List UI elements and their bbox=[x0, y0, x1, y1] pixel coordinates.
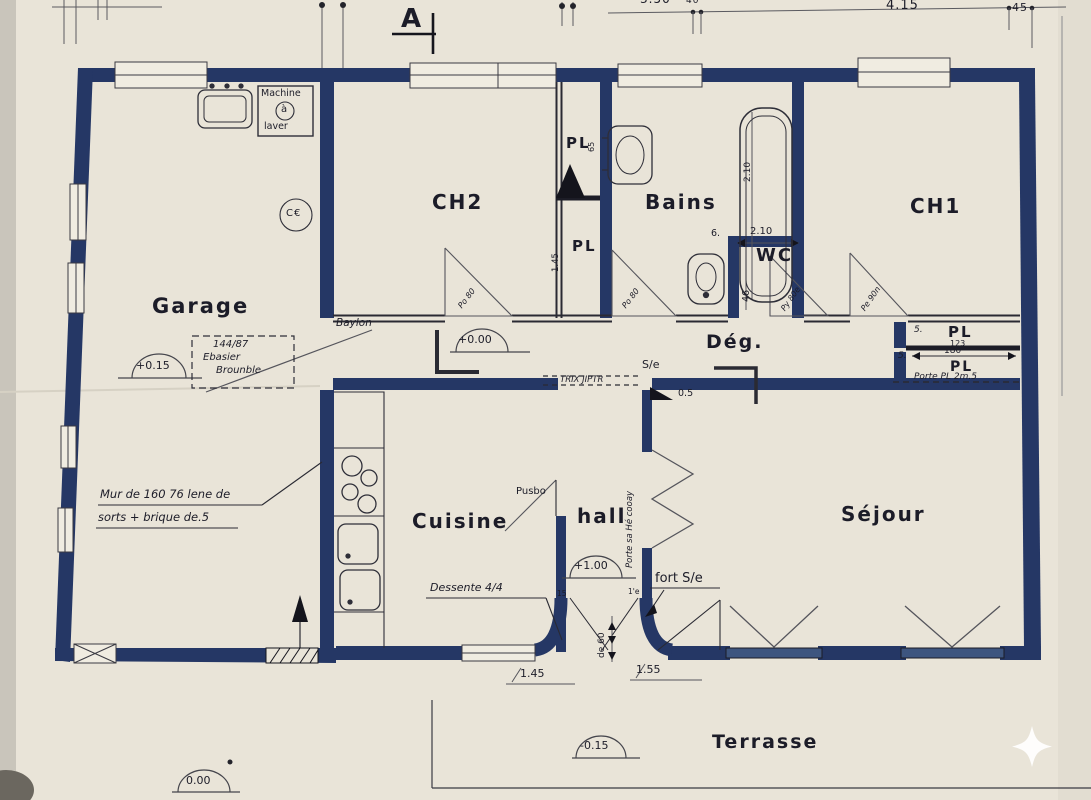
top-dim-415: 4.15 bbox=[886, 0, 919, 12]
room-label-wc: WC bbox=[756, 247, 793, 265]
room-label-bains: Bains bbox=[645, 192, 717, 212]
section-marker-a: A bbox=[401, 6, 423, 32]
dim-wc-width: 2.10 bbox=[750, 227, 772, 237]
dim-step-60: de 60 bbox=[598, 632, 607, 658]
pl-ch1-b-dim: 180 bbox=[944, 347, 961, 356]
room-label-terrasse: Terrasse bbox=[712, 733, 818, 752]
watermark-star-icon bbox=[1012, 726, 1052, 767]
dim-wc-depth: 46 bbox=[742, 290, 752, 302]
pl-door-note: Porte PL 2m.5 bbox=[914, 373, 977, 382]
pl-ch1-a-off: 5. bbox=[914, 326, 923, 335]
dim-bath: 2.10 bbox=[744, 162, 753, 182]
room-label-sejour: Séjour bbox=[841, 504, 926, 524]
pl-ch1-a-label: PL bbox=[948, 325, 973, 340]
plan-drawing bbox=[0, 0, 1091, 800]
top-dim-40: 40 bbox=[686, 0, 699, 6]
ce-symbol: C€ bbox=[286, 209, 301, 219]
bathtub bbox=[740, 108, 792, 302]
thin-walls-and-doors bbox=[96, 82, 1091, 788]
top-dim-350: 3.50 bbox=[640, 0, 671, 5]
dim-door-145: 1.45 bbox=[520, 668, 545, 679]
floor-plan: A 3.50 40 4.15 45 Garage CH2 Bains WC CH… bbox=[0, 0, 1091, 800]
step-dim: 0.5 bbox=[678, 389, 693, 399]
se-note: S/e bbox=[642, 359, 659, 370]
pl-mid-label: PL bbox=[572, 239, 597, 254]
level-corridor: +0.00 bbox=[458, 334, 492, 345]
garage-sink bbox=[198, 84, 252, 128]
door-fort-se: fort S/e bbox=[655, 572, 703, 585]
level-ground: 0.00 bbox=[186, 775, 211, 786]
window-openings bbox=[58, 58, 950, 663]
room-label-garage: Garage bbox=[152, 296, 249, 317]
interior-walls bbox=[320, 82, 1020, 652]
dim-tick-15: 15 bbox=[557, 590, 567, 598]
dim-door-155: 1.55 bbox=[636, 664, 661, 675]
door-cuisine-pusbo: Pusbo bbox=[516, 487, 546, 497]
room-label-deg: Dég. bbox=[706, 333, 763, 352]
fixtures bbox=[192, 84, 792, 648]
pl-mid-dim: 1.45 bbox=[552, 253, 561, 272]
wall-note-1: Mur de 160 76 lene de bbox=[100, 489, 230, 501]
floor-joint-note: TRIX JIPTR bbox=[560, 376, 603, 385]
dessente-note: Dessente 4/4 bbox=[430, 582, 503, 593]
door-hall-sejour-note: Porte sa Hé cooay bbox=[626, 491, 635, 568]
wall-note-2: sorts + brique de.5 bbox=[98, 512, 209, 524]
machine-label-1: Machine bbox=[261, 89, 301, 99]
top-dim-45: 45 bbox=[1012, 2, 1028, 13]
room-label-ch1: CH1 bbox=[910, 196, 961, 216]
cadastre-number: 144/87 bbox=[213, 340, 248, 350]
level-terrace: -0.15 bbox=[580, 740, 608, 751]
pl-top-dim: 65 bbox=[588, 142, 596, 152]
room-label-cuisine: Cuisine bbox=[412, 511, 508, 531]
machine-label-3: laver bbox=[264, 122, 288, 132]
paper-artifacts bbox=[0, 0, 1091, 800]
level-garage: +0.15 bbox=[136, 360, 170, 371]
kitchen-counter bbox=[334, 392, 384, 648]
machine-label-2: à bbox=[281, 105, 287, 115]
cadastre-name-1: Ebasier bbox=[203, 353, 240, 363]
outer-walls bbox=[55, 68, 1041, 663]
dim-wc-gap: 6. bbox=[711, 229, 720, 239]
door-baylon: Baylon bbox=[336, 318, 372, 329]
toilet bbox=[688, 254, 724, 304]
pl-ch1-b-off: 5. bbox=[898, 352, 907, 361]
cadastre-name-2: Brounble bbox=[216, 366, 261, 376]
level-hall: +1.00 bbox=[574, 560, 608, 571]
room-label-hall: hall bbox=[577, 506, 626, 526]
dim-tick-1e: 1'e bbox=[628, 588, 639, 596]
room-label-ch2: CH2 bbox=[432, 192, 483, 212]
